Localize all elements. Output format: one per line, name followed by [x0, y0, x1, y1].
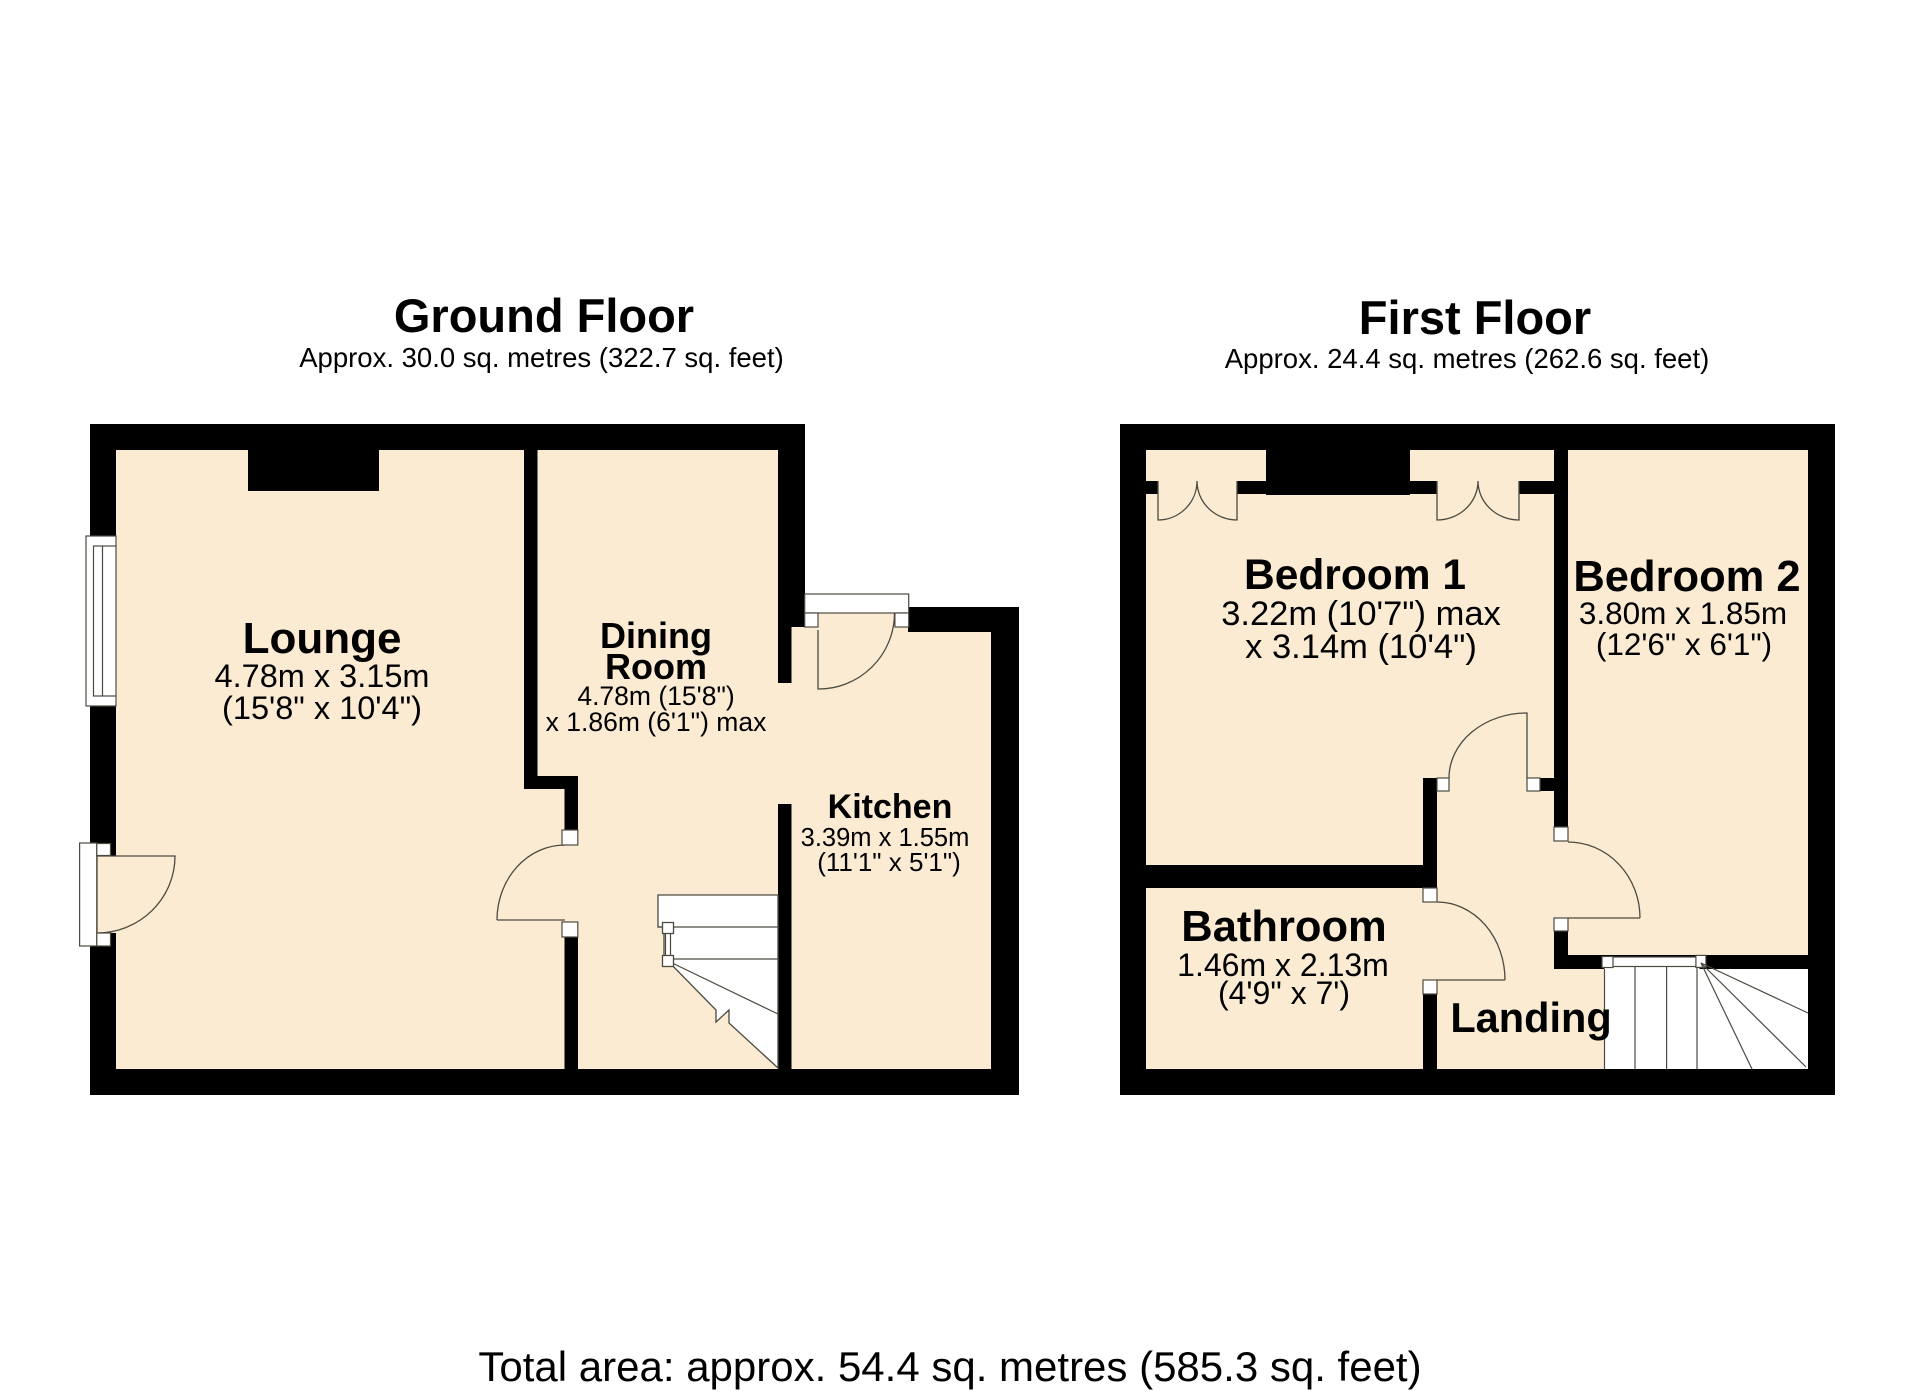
svg-text:x 3.14m (10'4"): x 3.14m (10'4"): [1245, 628, 1477, 666]
svg-text:(12'6" x 6'1"): (12'6" x 6'1"): [1596, 626, 1772, 662]
svg-text:Landing: Landing: [1450, 994, 1611, 1041]
svg-text:(4'9" x 7'): (4'9" x 7'): [1218, 975, 1350, 1011]
svg-text:Bedroom 2: Bedroom 2: [1573, 553, 1800, 601]
svg-text:4.78m x 3.15m: 4.78m x 3.15m: [215, 658, 430, 694]
svg-text:Approx. 30.0 sq. metres (322.7: Approx. 30.0 sq. metres (322.7 sq. feet): [299, 342, 784, 373]
svg-text:(15'8" x 10'4"): (15'8" x 10'4"): [222, 690, 422, 726]
svg-text:Bedroom 1: Bedroom 1: [1244, 552, 1466, 599]
svg-text:Total area: approx. 54.4 sq. m: Total area: approx. 54.4 sq. metres (585…: [478, 1343, 1421, 1390]
svg-text:x 1.86m (6'1") max: x 1.86m (6'1") max: [546, 707, 767, 737]
svg-text:Bathroom: Bathroom: [1181, 903, 1386, 951]
svg-text:Ground Floor: Ground Floor: [394, 289, 694, 342]
svg-text:(11'1" x 5'1"): (11'1" x 5'1"): [817, 847, 961, 877]
svg-text:First Floor: First Floor: [1359, 291, 1591, 344]
svg-text:Kitchen: Kitchen: [828, 788, 953, 826]
svg-text:Lounge: Lounge: [243, 614, 402, 663]
svg-text:Approx. 24.4 sq. metres (262.6: Approx. 24.4 sq. metres (262.6 sq. feet): [1225, 343, 1710, 374]
